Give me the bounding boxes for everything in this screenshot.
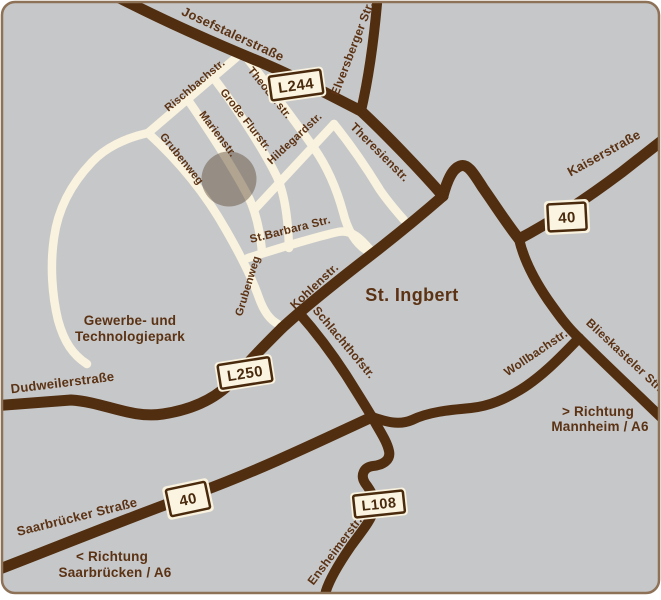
- label-richtung-mannheim-line1: > Richtung: [562, 404, 634, 419]
- label-technologiepark-line1: Gewerbe- und: [84, 313, 176, 328]
- label-technologiepark-line2: Technologiepark: [75, 329, 185, 344]
- badge-40-kaiserstrasse: 40: [544, 199, 591, 235]
- badge-40-west-text: 40: [178, 490, 199, 510]
- label-richtung-saarbruecken-line2: Saarbrücken / A6: [59, 565, 172, 580]
- location-marker: [202, 152, 257, 207]
- badge-40-east-text: 40: [558, 209, 577, 227]
- label-town-st-ingbert: St. Ingbert: [365, 285, 458, 305]
- map-page: Josefstalerstraße Elversberger Str. Ther…: [0, 0, 661, 600]
- label-richtung-mannheim-line2: Mannheim / A6: [551, 419, 649, 434]
- badge-l108: L108: [350, 487, 409, 521]
- label-richtung-saarbruecken-line1: < Richtung: [76, 549, 148, 564]
- city-map-canvas: Josefstalerstraße Elversberger Str. Ther…: [0, 0, 661, 600]
